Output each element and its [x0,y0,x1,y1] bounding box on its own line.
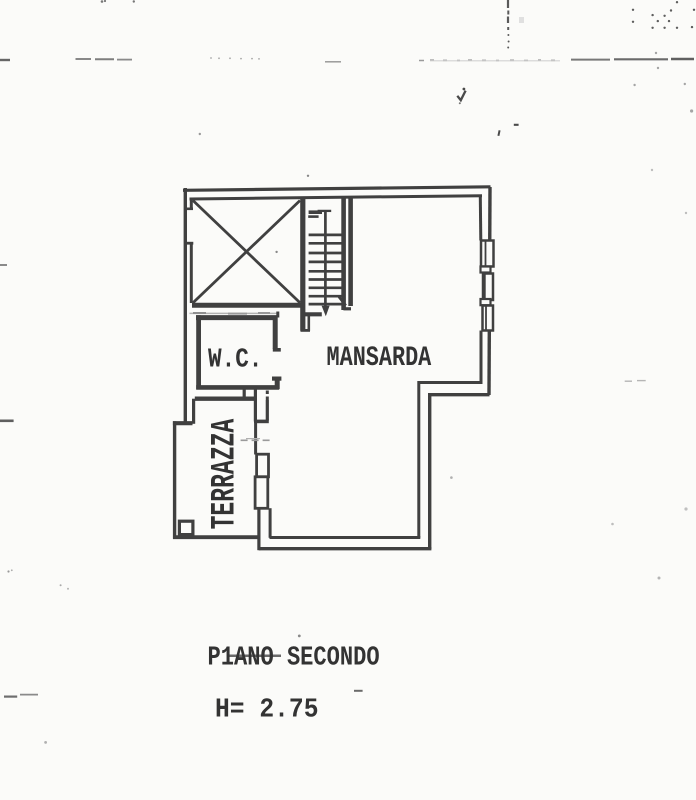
svg-text:MANSARDA: MANSARDA [327,342,433,374]
svg-text:TERRAZZA: TERRAZZA [206,418,245,529]
svg-text:H= 2.75: H= 2.75 [215,695,318,725]
svg-text:W.C.: W.C. [208,345,262,375]
svg-text:P1ANO SECONDO: P1ANO SECONDO [208,644,380,673]
